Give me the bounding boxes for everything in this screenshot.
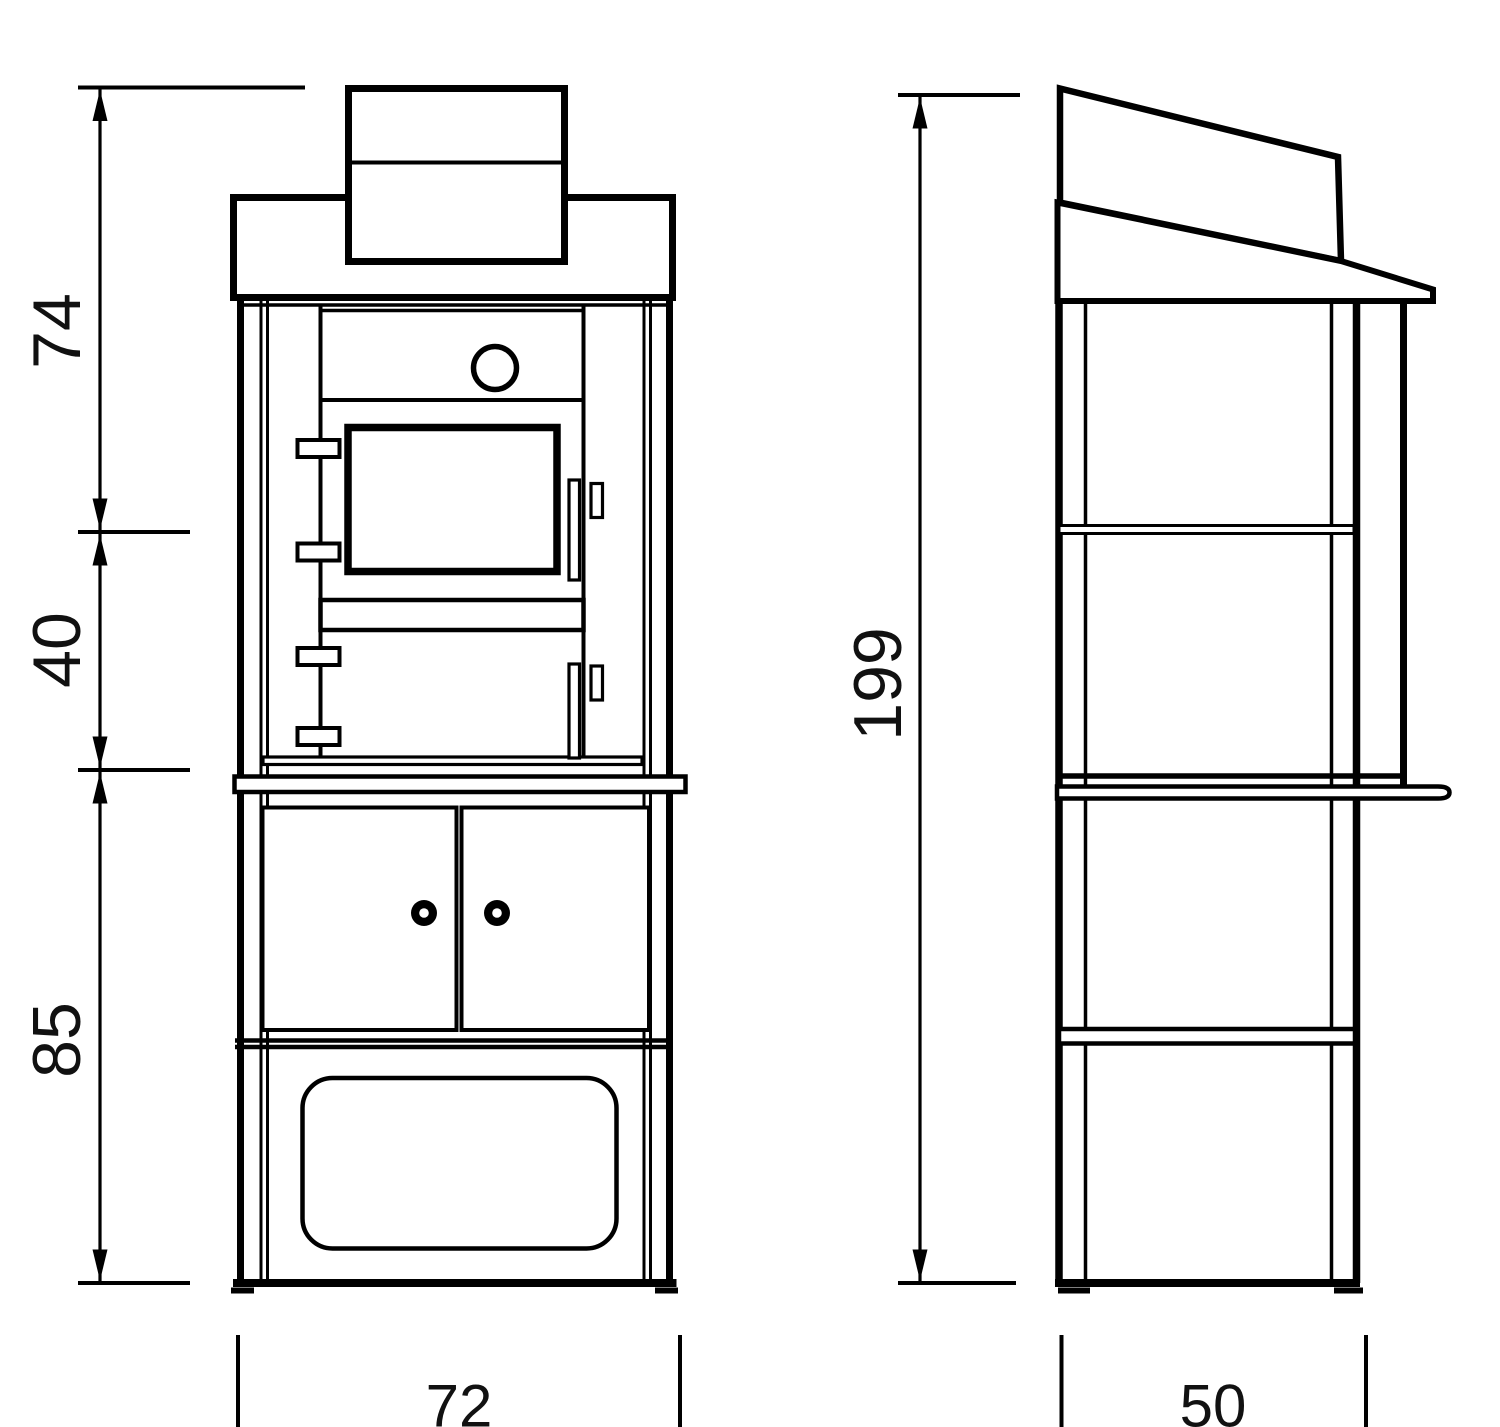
door-panel-bottom-band bbox=[263, 757, 642, 765]
hinge-firebox-bottom bbox=[298, 728, 340, 745]
stove-technical-drawing: 74 40 85 199 72 50 bbox=[0, 0, 1500, 1427]
oven-door-window bbox=[348, 428, 557, 572]
arrow-down-bottom bbox=[93, 1250, 108, 1281]
dimension-label-74: 74 bbox=[19, 293, 95, 369]
dimension-label-50: 50 bbox=[1180, 1373, 1247, 1427]
firebox-door-handle-knob bbox=[591, 666, 603, 700]
hinge-oven-bottom bbox=[298, 544, 340, 561]
side-base-divider-band bbox=[1059, 1029, 1355, 1044]
worktop-shelf-front bbox=[235, 777, 686, 793]
dimension-label-40: 40 bbox=[19, 612, 95, 688]
hinge-oven-top bbox=[298, 440, 340, 457]
dimension-label-199: 199 bbox=[840, 627, 916, 740]
dimension-depth-side: 50 bbox=[1062, 1335, 1367, 1427]
chimney-box bbox=[349, 89, 565, 262]
arrow-up-199 bbox=[913, 98, 928, 129]
technical-drawing-page: 74 40 85 199 72 50 bbox=[0, 0, 1500, 1427]
side-mid-shelf-line bbox=[1059, 526, 1354, 534]
arrow-down-199 bbox=[913, 1250, 928, 1281]
oven-door-handle-knob bbox=[591, 484, 603, 518]
arrow-up-85 bbox=[93, 773, 108, 804]
arrow-down-40 bbox=[93, 737, 108, 768]
arrow-up-40 bbox=[93, 535, 108, 566]
dimension-label-85: 85 bbox=[19, 1002, 95, 1078]
oven-door-handle-bar bbox=[569, 480, 580, 580]
dimension-total-height: 199 bbox=[840, 95, 1020, 1283]
front-view bbox=[231, 89, 686, 1291]
arrow-up-top bbox=[93, 90, 108, 121]
base-drawer-front bbox=[303, 1078, 617, 1249]
door-divider-band bbox=[321, 600, 584, 630]
arrow-down-74 bbox=[93, 499, 108, 530]
dimension-width-front: 72 bbox=[238, 1335, 680, 1427]
dimension-label-72: 72 bbox=[426, 1373, 493, 1427]
hinge-firebox-top bbox=[298, 648, 340, 665]
worktop-shelf-side bbox=[1057, 787, 1450, 799]
air-vent-knob bbox=[474, 347, 517, 390]
firebox-door-handle-bar bbox=[569, 664, 580, 758]
side-view bbox=[1055, 89, 1450, 1291]
